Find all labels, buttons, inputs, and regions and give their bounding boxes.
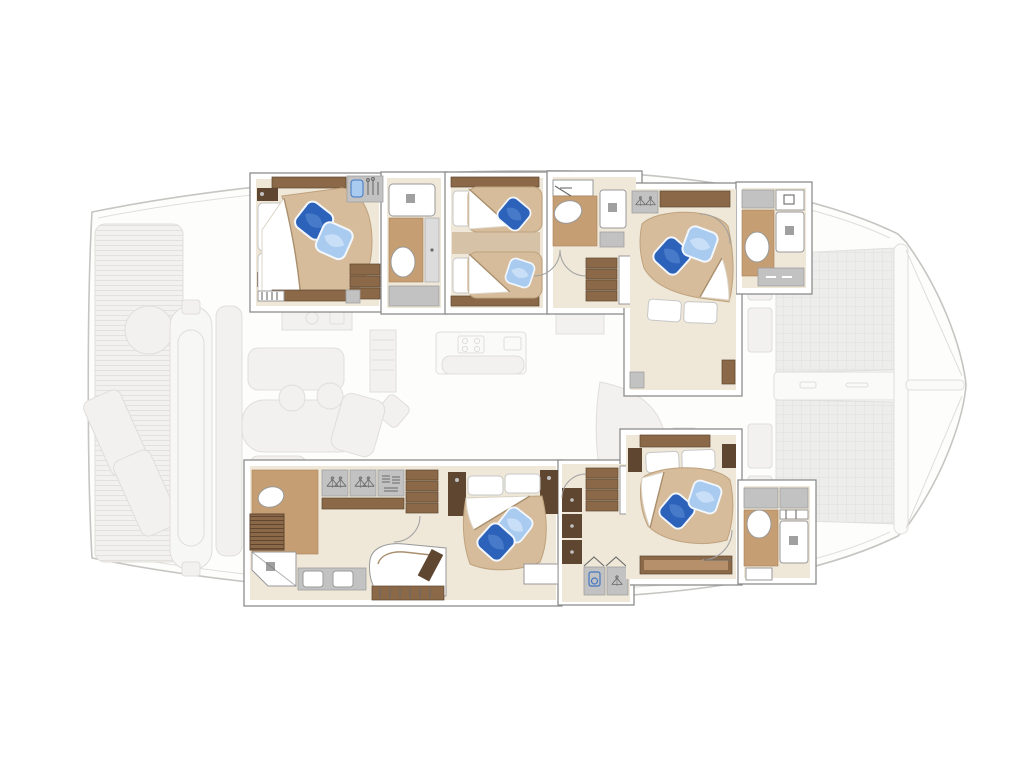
shower-aft-port — [389, 184, 435, 216]
shelf-band — [322, 498, 404, 509]
shelf-trim-top — [272, 177, 346, 188]
double-washbasin — [298, 568, 366, 590]
bench-seat — [524, 564, 558, 584]
washing-machine — [584, 567, 605, 595]
cabinet-top — [742, 190, 774, 208]
shelf-trim-top — [640, 435, 710, 447]
vanity — [746, 568, 772, 580]
shower-cabin-mid-port — [600, 190, 626, 247]
locker-column — [562, 488, 582, 564]
single-bed-2 — [453, 252, 542, 298]
bedside-block — [628, 448, 642, 472]
wardrobe-fwd-port — [632, 191, 658, 213]
corner-cabinet — [346, 290, 360, 303]
galley-bench — [442, 356, 524, 374]
toilet — [391, 247, 415, 277]
aft-bench — [216, 306, 242, 556]
stern-table — [125, 306, 173, 354]
vanity-aft-port — [347, 176, 383, 202]
cabinet-top — [780, 488, 808, 508]
vanity — [776, 190, 804, 210]
guest-cabin-mid-port — [451, 177, 543, 308]
bench-block — [722, 360, 735, 384]
stairs-starboard — [586, 466, 630, 514]
forward-walkway — [774, 372, 900, 400]
between-beds-platform — [452, 232, 540, 254]
head-aft-port — [387, 178, 441, 308]
bedside-block — [722, 444, 736, 468]
berth-pillow — [468, 476, 503, 495]
guest-cabin-fwd-starboard — [626, 435, 736, 579]
forward-crossbeam — [894, 244, 908, 534]
cabinet-top — [744, 488, 778, 508]
owner-lounge — [369, 544, 446, 600]
berth-pillow — [647, 299, 681, 322]
toilet — [745, 232, 769, 262]
hanging-locker — [607, 567, 628, 595]
folded-clothes-shelf — [378, 470, 404, 496]
berth-pillow — [684, 301, 718, 323]
shower-fwd-port — [776, 212, 804, 252]
owner-suite — [250, 466, 558, 600]
corner-cabinet — [630, 372, 644, 388]
catamaran-floor-plan-page — [0, 0, 1024, 768]
catamaran-floor-plan — [0, 0, 1024, 768]
tender-dinghy — [170, 300, 212, 576]
sink-blue — [351, 180, 363, 197]
cabinet-low — [389, 286, 439, 306]
towel-rail — [780, 510, 808, 519]
drawer-unit — [372, 586, 444, 600]
head-fwd-port — [742, 188, 806, 288]
berth-pillow — [505, 474, 540, 493]
single-bed-1 — [453, 187, 542, 233]
toilet — [747, 510, 771, 538]
bowsprit — [906, 380, 964, 390]
shelf-trim-top — [451, 177, 539, 187]
shelf-wood — [660, 191, 730, 207]
guest-cabin-fwd-port — [630, 189, 736, 390]
head-fwd-starboard — [744, 486, 810, 580]
cabinet-low — [758, 268, 804, 286]
companionway-starboard — [562, 464, 630, 602]
guest-cabin-aft-port — [256, 176, 383, 306]
companionway-port — [586, 256, 637, 304]
shower-fwd-starboard — [780, 521, 808, 563]
louver-locker — [250, 514, 284, 550]
